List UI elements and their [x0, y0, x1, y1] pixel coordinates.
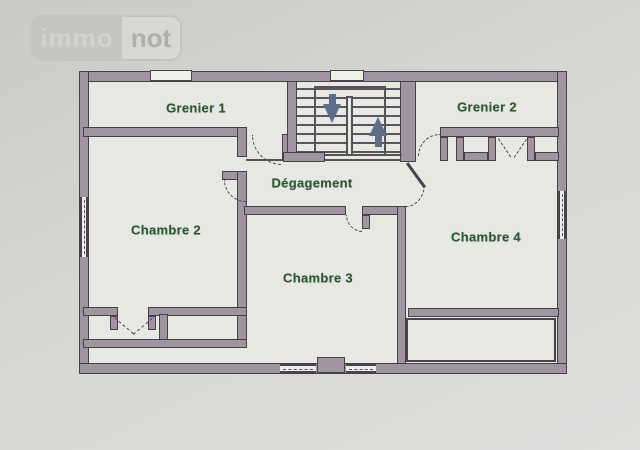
room-label-grenier2: Grenier 2: [457, 100, 517, 115]
wall-stairs-left: [287, 81, 297, 162]
stair-center-stringer: [346, 96, 353, 156]
window-left: [80, 197, 88, 257]
grenier2-jamb-1: [440, 137, 448, 161]
wall-degagement-bottom-left: [244, 206, 346, 215]
chimney-block: [317, 357, 345, 373]
logo-not-text: not: [122, 17, 180, 59]
closet-bottom-wall: [83, 339, 247, 348]
roof-window-top-left: [150, 70, 192, 81]
window-glazing-line: [84, 200, 85, 254]
logo-immo-text: immo: [32, 17, 122, 59]
wall-chambre4-bottom: [408, 308, 559, 317]
stair-up-arrow: [375, 135, 382, 147]
window-glazing-line: [349, 369, 373, 370]
window-bottom-1: [280, 364, 316, 373]
wall-chambre2-right-upper: [237, 127, 247, 157]
grenier2-jamb-4: [527, 137, 535, 161]
stair-landing-edge: [325, 154, 402, 156]
door-jamb-chambre3: [362, 215, 370, 229]
wall-chambre3-chambre4-divider: [397, 206, 406, 364]
room-label-chambre2: Chambre 2: [131, 223, 201, 238]
floor-plan: immo not: [0, 0, 640, 450]
wall-chambre2-bottom-left: [83, 307, 118, 316]
grenier2-lower-wall-2: [535, 152, 559, 161]
immonot-logo: immo not: [30, 15, 182, 61]
grenier2-jamb-2: [456, 137, 464, 161]
room-label-chambre4: Chambre 4: [451, 230, 521, 245]
grenier2-lower-wall-1: [464, 152, 488, 161]
stair-tread: [297, 88, 400, 90]
window-glazing-line: [283, 369, 313, 370]
wall-grenier1-bottom: [83, 127, 247, 137]
grenier2-jamb-3: [488, 137, 496, 161]
window-bottom-2: [346, 364, 376, 373]
stair-up-arrow-icon: [369, 117, 387, 136]
room-label-grenier1: Grenier 1: [166, 101, 226, 116]
room-label-chambre3: Chambre 3: [283, 271, 353, 286]
window-glazing-line: [562, 194, 563, 236]
stair-down-arrow-icon: [323, 104, 341, 123]
wall-grenier2-bottom: [440, 127, 559, 137]
roof-window-top-center: [330, 70, 364, 81]
wall-stairs-right: [400, 81, 416, 162]
wall-stairs-bottom-stub: [283, 152, 325, 162]
eaves-storage-box: [406, 318, 556, 362]
room-label-degagement: Dégagement: [271, 176, 352, 191]
window-right: [558, 191, 566, 239]
